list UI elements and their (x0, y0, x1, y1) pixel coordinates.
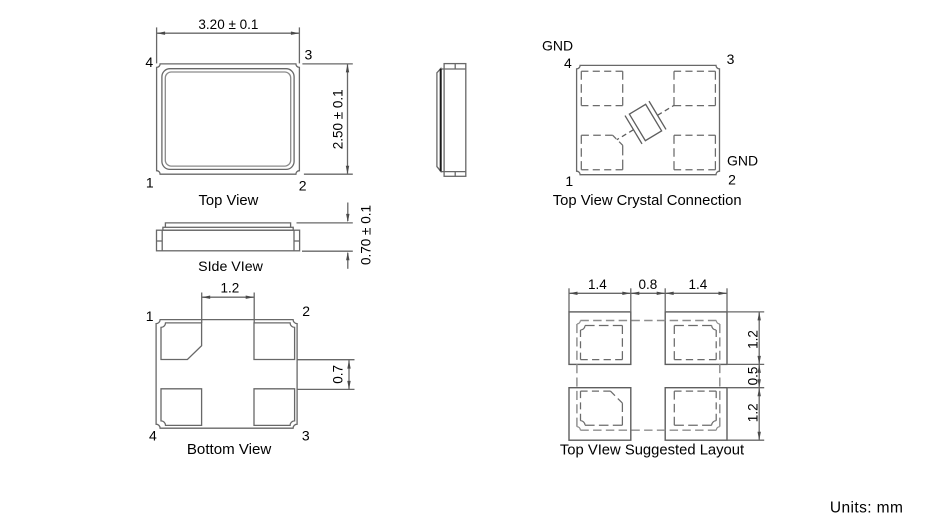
svg-text:4: 4 (564, 55, 572, 71)
svg-text:Units: mm: Units: mm (830, 499, 903, 516)
svg-text:2: 2 (299, 178, 307, 194)
svg-text:2: 2 (728, 172, 736, 188)
svg-text:Top View: Top View (199, 193, 259, 209)
svg-text:1.2: 1.2 (745, 330, 760, 349)
svg-text:1.4: 1.4 (588, 277, 607, 292)
svg-text:1: 1 (146, 308, 154, 324)
svg-text:0.7: 0.7 (330, 365, 345, 384)
svg-text:0.8: 0.8 (639, 277, 658, 292)
svg-text:4: 4 (145, 54, 153, 70)
svg-text:Top View Crystal Connection: Top View Crystal Connection (553, 193, 742, 209)
svg-text:Bottom View: Bottom View (187, 441, 272, 458)
svg-text:1: 1 (565, 173, 573, 189)
svg-text:GND: GND (727, 153, 758, 169)
svg-text:0.5: 0.5 (745, 367, 760, 386)
svg-text:3.20 ± 0.1: 3.20 ± 0.1 (198, 17, 258, 32)
svg-text:1.2: 1.2 (221, 281, 240, 296)
svg-text:2: 2 (302, 303, 310, 319)
svg-text:GND: GND (542, 38, 573, 54)
svg-text:1.2: 1.2 (745, 403, 760, 422)
svg-text:3: 3 (305, 47, 313, 63)
svg-text:1: 1 (146, 175, 154, 191)
svg-text:SIde VIew: SIde VIew (198, 259, 263, 275)
svg-text:1.4: 1.4 (689, 277, 708, 292)
svg-text:3: 3 (727, 51, 735, 67)
svg-text:4: 4 (149, 428, 157, 444)
svg-text:0.70 ± 0.1: 0.70 ± 0.1 (358, 205, 373, 265)
svg-text:3: 3 (302, 428, 310, 444)
svg-text:Top VIew Suggested Layout: Top VIew Suggested Layout (560, 442, 744, 458)
svg-text:2.50 ± 0.1: 2.50 ± 0.1 (331, 89, 346, 149)
